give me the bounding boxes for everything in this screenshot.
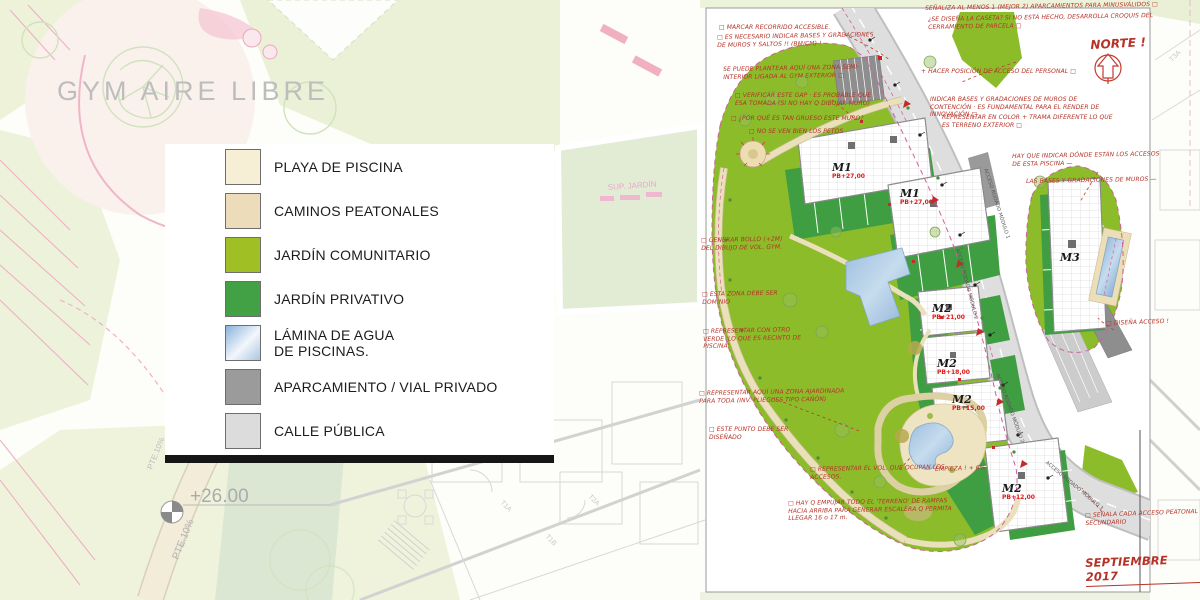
- date-label: SEPTIEMBRE 2017: [1085, 552, 1200, 587]
- annotation: □ ESTA ZONA DEBE SER DOMINIO: [702, 289, 797, 306]
- unit-type-label: T3A: [1168, 49, 1182, 63]
- background-right: T3A: [1150, 0, 1200, 560]
- annotation: □ VERIFICAR ESTE GAP · ES PROBABLE QUE E…: [735, 92, 883, 107]
- legend-swatch: [225, 149, 261, 185]
- map-legend: PLAYA DE PISCINA CAMINOS PEATONALES JARD…: [165, 144, 554, 463]
- legend-item: CALLE PÚBLICA: [225, 413, 554, 449]
- building-label: M2 PB+21,00: [932, 303, 965, 321]
- legend-label: JARDÍN COMUNITARIO: [274, 247, 524, 263]
- annotation: HAY QUE INDICAR DÓNDE ESTÁN LOS ACCESOS …: [1012, 150, 1162, 168]
- legend-item: CAMINOS PEATONALES: [225, 193, 554, 229]
- legend-swatch: [225, 413, 261, 449]
- annotation: □ HAY Q EMPUJAR TODO EL 'TERRENO' DE RAM…: [788, 497, 960, 522]
- building-label: M2 PB+15,00: [952, 394, 985, 412]
- north-label: NORTE !: [1090, 35, 1146, 53]
- level-label: +26.00: [190, 486, 249, 507]
- legend-label: APARCAMIENTO / VIAL PRIVADO: [274, 379, 524, 395]
- legend-swatch: [225, 369, 261, 405]
- legend-item: APARCAMIENTO / VIAL PRIVADO: [225, 369, 554, 405]
- annotation: □ GENERAR BOLLO (+2M) DEL DIBUJO DE VOL.…: [701, 235, 793, 252]
- legend-label: JARDÍN PRIVATIVO: [274, 291, 524, 307]
- annotation: □ MARCAR RECORRIDO ACCESIBLE.: [719, 24, 879, 32]
- building-label: M1 PB+27,00: [832, 162, 865, 180]
- legend-swatch-water: [225, 325, 261, 361]
- legend-swatch: [225, 193, 261, 229]
- annotation: □ REPRESENTAR CON OTRO VERDE 'LO QUE ES …: [703, 326, 803, 350]
- building-label: M2 PB+12,00: [1002, 483, 1035, 501]
- masterplan-screenshot: GYM AIRE LIBRE +26.00 PTE.10% PTE.10% T1…: [0, 0, 1200, 600]
- unit-type-label: T2A: [587, 493, 601, 507]
- legend-item: JARDÍN COMUNITARIO: [225, 237, 554, 273]
- legend-swatch: [225, 237, 261, 273]
- gym-area-label: GYM AIRE LIBRE: [57, 76, 329, 106]
- annotation: □ ¿POR QUÉ ES TAN GRUESO ESTE MURO?: [731, 115, 871, 123]
- annotation: □ REPRESENTAR EL VOL. QUE OCUPAN LOS ACC…: [810, 464, 945, 481]
- annotation: SE PUEDE PLANTEAR AQUÍ UNA ZONA SEMI-INT…: [723, 63, 873, 81]
- legend-item: PLAYA DE PISCINA: [225, 149, 554, 185]
- legend-swatch: [225, 281, 261, 317]
- building-label: M2 PB+18,00: [937, 358, 970, 376]
- annotation: + HACER POSICIÓN DE ACCESO DEL PERSONAL …: [921, 68, 1131, 76]
- legend-label: LÁMINA DE AGUA DE PISCINAS.: [274, 327, 409, 359]
- annotation: □ ESTE PUNTO DEBE SER DISEÑADO: [709, 426, 819, 441]
- annotation: □ NO SE VEN BIEN LOS PETOS: [749, 128, 869, 136]
- legend-label: CALLE PÚBLICA: [274, 423, 524, 439]
- legend-label: CAMINOS PEATONALES: [274, 203, 524, 219]
- legend-label: PLAYA DE PISCINA: [274, 159, 524, 175]
- annotation: □ REPRESENTAR AQUÍ UNA ZONA AJARDINADA P…: [699, 387, 859, 405]
- unit-type-label: T1A: [499, 499, 513, 513]
- building-label: M1 PB+27,00: [900, 188, 933, 206]
- legend-item: JARDÍN PRIVATIVO: [225, 281, 554, 317]
- annotation: □ ES NECESARIO INDICAR BASES Y GRADACION…: [717, 31, 875, 49]
- legend-item: LÁMINA DE AGUA DE PISCINAS.: [225, 325, 554, 361]
- unit-type-label: T1B: [544, 533, 558, 547]
- building-label: M3: [1060, 252, 1080, 263]
- annotation: REPRESENTAR EN COLOR + TRAMA DIFERENTE L…: [942, 114, 1117, 129]
